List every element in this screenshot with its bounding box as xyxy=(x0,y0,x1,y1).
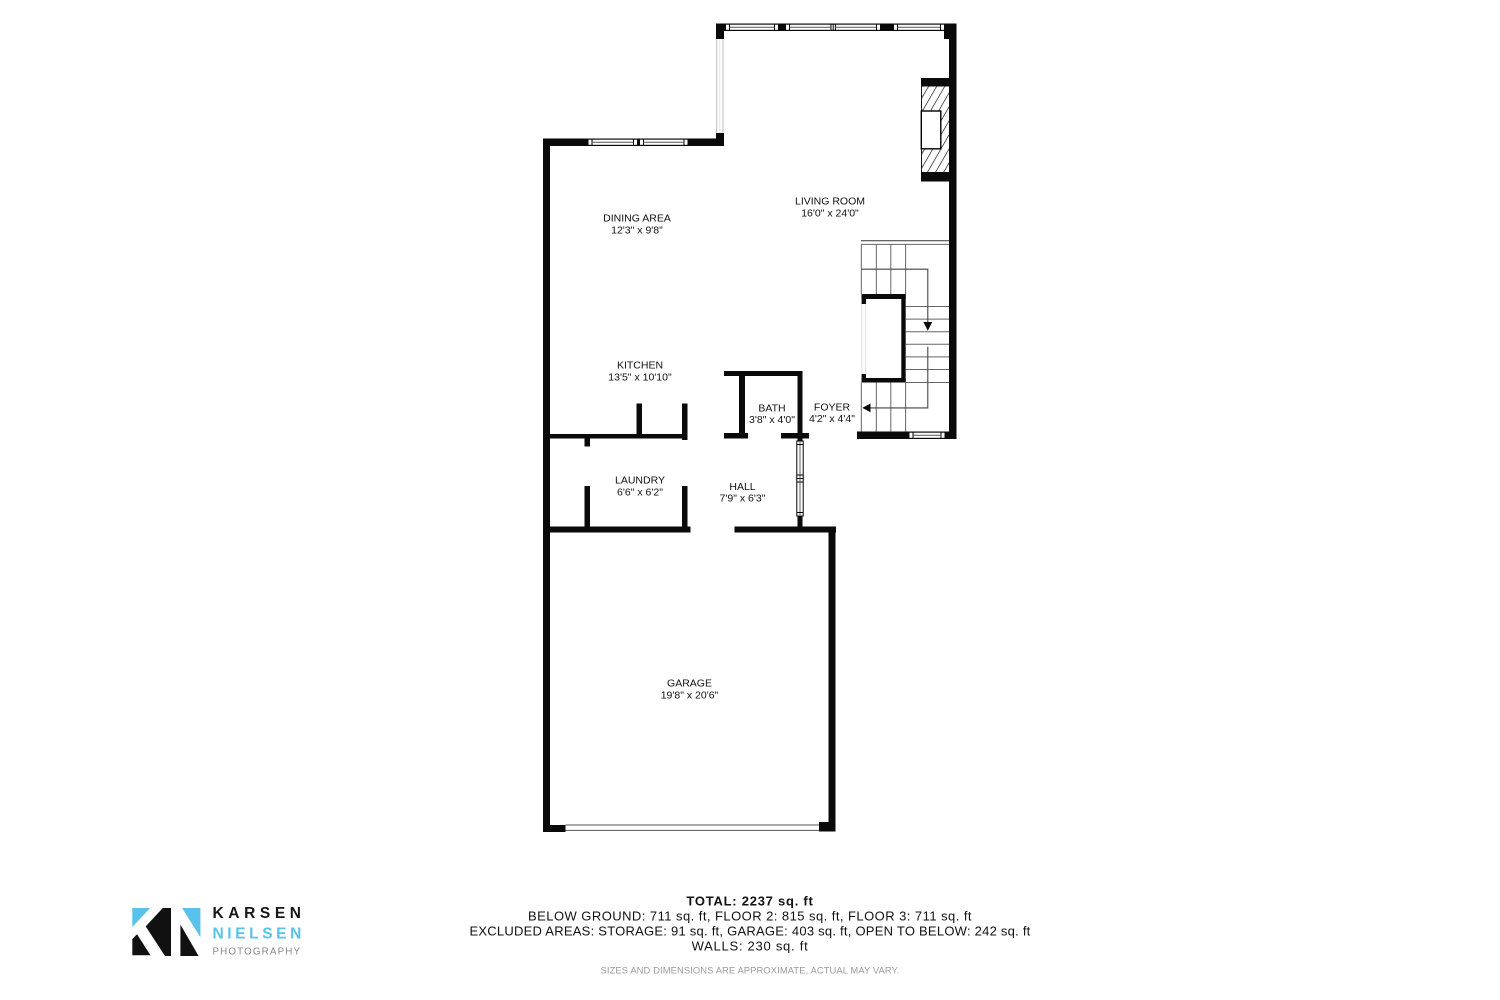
svg-text:KARSEN: KARSEN xyxy=(213,905,306,922)
svg-text:KITCHEN: KITCHEN xyxy=(617,360,663,372)
svg-text:LIVING ROOM: LIVING ROOM xyxy=(795,196,865,208)
svg-text:PHOTOGRAPHY: PHOTOGRAPHY xyxy=(213,947,302,958)
svg-text:DINING AREA: DINING AREA xyxy=(603,213,671,225)
svg-text:LAUNDRY: LAUNDRY xyxy=(615,475,665,487)
svg-text:19'8" x 20'6": 19'8" x 20'6" xyxy=(661,690,719,702)
svg-text:BELOW GROUND: 711 sq. ft, FLOO: BELOW GROUND: 711 sq. ft, FLOOR 2: 815 s… xyxy=(528,909,972,924)
svg-text:FOYER: FOYER xyxy=(814,402,851,414)
svg-text:BATH: BATH xyxy=(758,403,785,415)
svg-text:6'6" x 6'2": 6'6" x 6'2" xyxy=(617,487,663,499)
svg-text:HALL: HALL xyxy=(729,481,755,493)
svg-text:4'2" x 4'4": 4'2" x 4'4" xyxy=(809,413,855,425)
svg-text:16'0" x 24'0": 16'0" x 24'0" xyxy=(801,208,859,220)
svg-text:EXCLUDED AREAS: STORAGE: 91 sq: EXCLUDED AREAS: STORAGE: 91 sq. ft, GARA… xyxy=(469,924,1030,939)
svg-text:WALLS: 230 sq. ft: WALLS: 230 sq. ft xyxy=(692,939,809,954)
svg-text:GARAGE: GARAGE xyxy=(667,678,712,690)
svg-text:3'8" x 4'0": 3'8" x 4'0" xyxy=(749,414,795,426)
svg-text:7'9" x 6'3": 7'9" x 6'3" xyxy=(720,493,766,505)
svg-text:SIZES AND DIMENSIONS ARE APPRO: SIZES AND DIMENSIONS ARE APPROXIMATE, AC… xyxy=(601,965,900,976)
svg-text:TOTAL: 2237 sq. ft: TOTAL: 2237 sq. ft xyxy=(686,894,813,909)
svg-text:13'5" x 10'10": 13'5" x 10'10" xyxy=(608,372,672,384)
svg-text:NIELSEN: NIELSEN xyxy=(213,926,305,943)
svg-text:12'3" x 9'8": 12'3" x 9'8" xyxy=(611,225,663,237)
